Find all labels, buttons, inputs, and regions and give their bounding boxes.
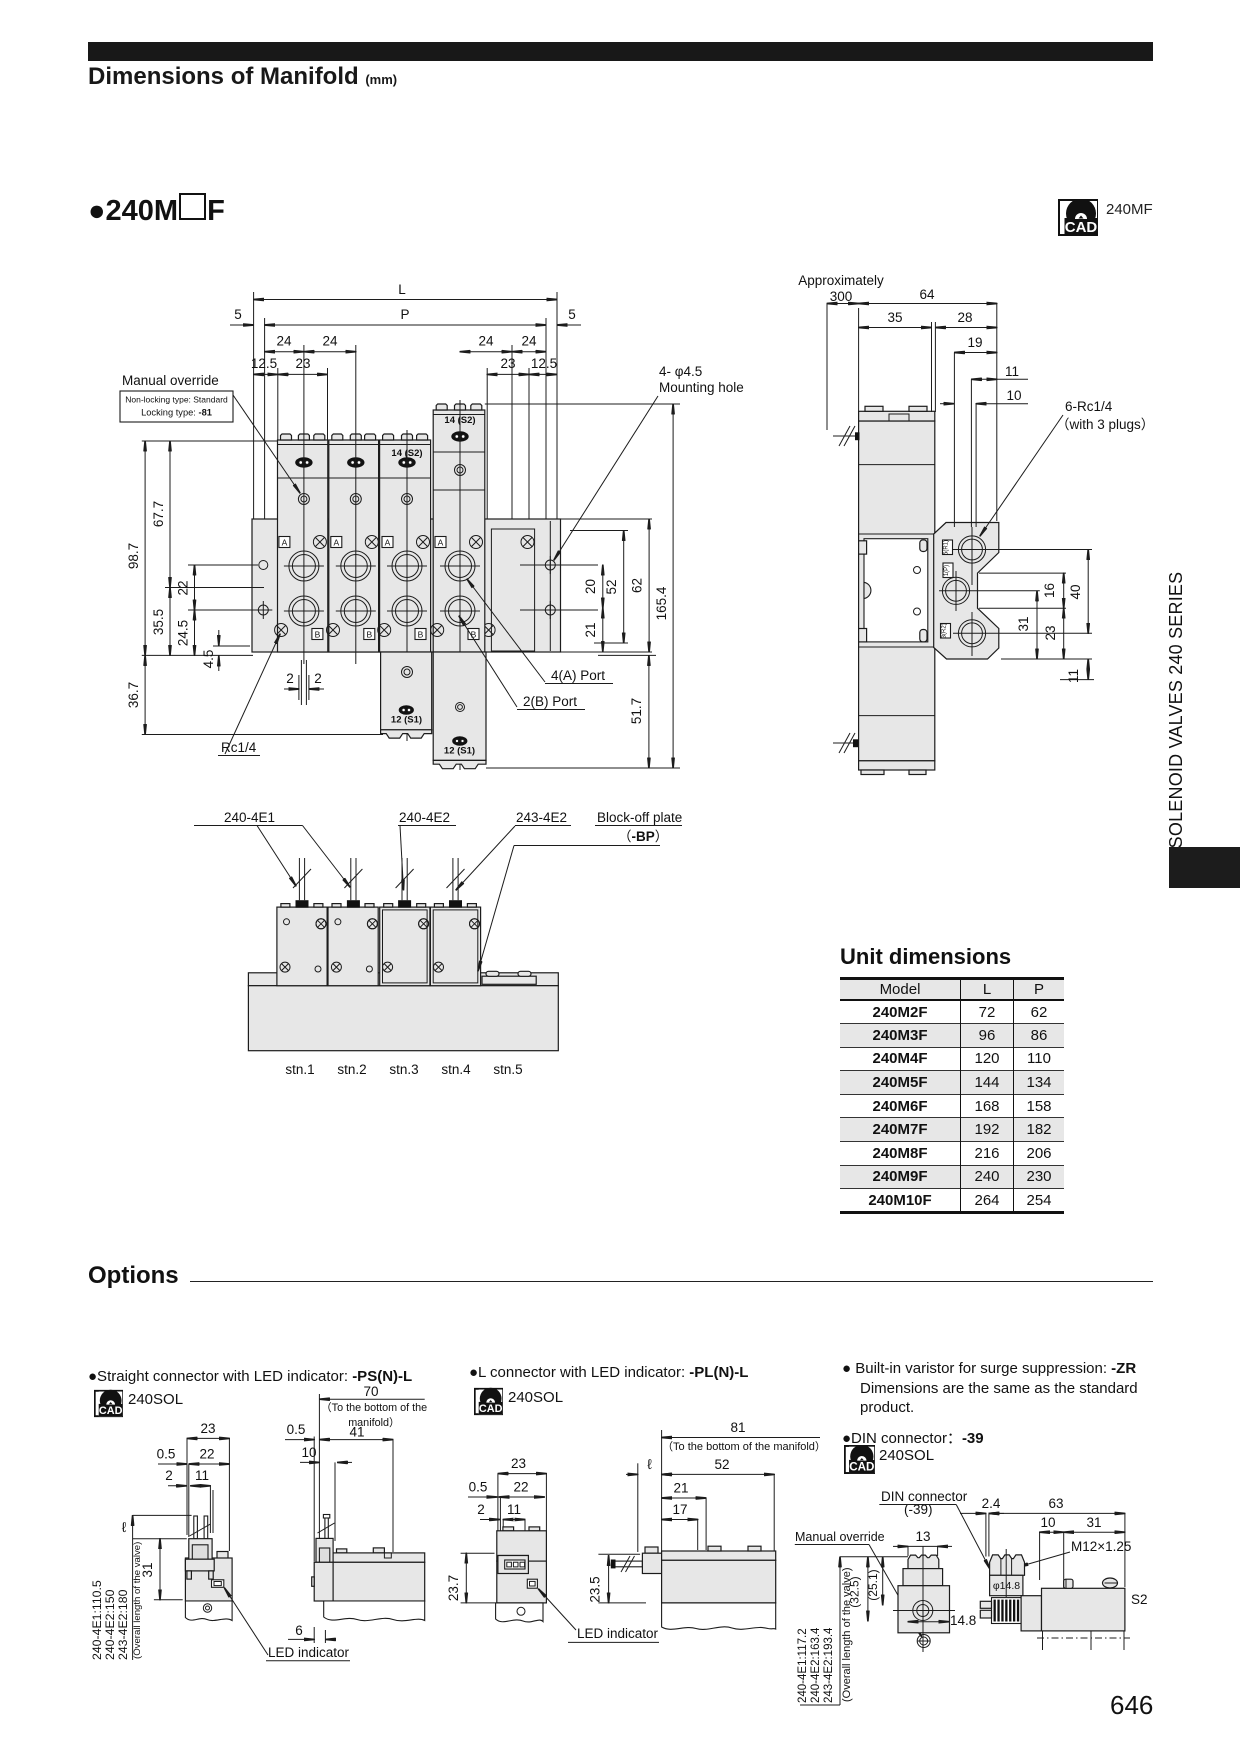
svg-text:63: 63 [1048, 1496, 1063, 1511]
svg-text:11: 11 [195, 1468, 209, 1483]
svg-text:14.8: 14.8 [950, 1613, 976, 1628]
svg-text:300: 300 [830, 289, 853, 304]
svg-text:240-4E2:163.4: 240-4E2:163.4 [810, 1627, 822, 1703]
svg-text:stn.2: stn.2 [337, 1062, 366, 1077]
svg-text:17: 17 [672, 1502, 687, 1517]
svg-text:stn.3: stn.3 [389, 1062, 418, 1077]
svg-text:13: 13 [915, 1529, 930, 1544]
svg-text:23: 23 [500, 356, 515, 371]
svg-text:ℓ: ℓ [122, 1519, 127, 1535]
svg-text:（with 3 plugs）: （with 3 plugs） [1056, 417, 1154, 432]
svg-text:31: 31 [1086, 1515, 1101, 1530]
svg-text:（To the bottom of the: （To the bottom of the [321, 1401, 427, 1414]
svg-text:stn.5: stn.5 [493, 1062, 522, 1077]
svg-text:A: A [385, 538, 391, 548]
svg-text:3(R2): 3(R2) [942, 623, 948, 638]
svg-text:70: 70 [363, 1384, 378, 1399]
svg-text:B: B [315, 630, 321, 640]
svg-text:A: A [438, 538, 444, 548]
svg-text:5(R1): 5(R1) [944, 540, 950, 555]
svg-text:LED indicator: LED indicator [268, 1645, 350, 1660]
svg-text:21: 21 [673, 1481, 688, 1496]
svg-text:67.7: 67.7 [151, 501, 166, 527]
svg-text:23.7: 23.7 [446, 1575, 461, 1601]
svg-text:Block-off plate: Block-off plate [597, 810, 682, 825]
svg-text:23: 23 [511, 1456, 526, 1471]
svg-text:23.5: 23.5 [588, 1576, 603, 1602]
svg-text:stn.4: stn.4 [441, 1062, 471, 1077]
svg-text:20: 20 [583, 579, 598, 594]
svg-text:LED indicator: LED indicator [577, 1626, 659, 1641]
svg-text:4- φ4.5: 4- φ4.5 [659, 364, 702, 379]
svg-text:Mounting hole: Mounting hole [659, 380, 744, 395]
svg-text:62: 62 [630, 578, 645, 593]
svg-text:P: P [400, 307, 409, 322]
svg-text:51.7: 51.7 [629, 698, 644, 724]
svg-text:6: 6 [295, 1623, 303, 1638]
svg-text:A: A [333, 538, 339, 548]
svg-text:(Overall length of the valve): (Overall length of the valve) [841, 1567, 853, 1702]
svg-text:L: L [398, 282, 406, 297]
svg-text:31: 31 [140, 1562, 155, 1577]
svg-text:23: 23 [295, 356, 310, 371]
svg-text:31: 31 [1016, 616, 1031, 631]
svg-text:4.5: 4.5 [201, 650, 216, 669]
svg-text:12 (S1): 12 (S1) [444, 746, 475, 757]
svg-text:24: 24 [478, 334, 494, 349]
svg-text:Locking type: -81: Locking type: -81 [141, 408, 212, 418]
svg-text:41: 41 [349, 1425, 364, 1440]
svg-text:22: 22 [513, 1480, 528, 1495]
svg-text:240-4E2:150: 240-4E2:150 [103, 1589, 117, 1660]
svg-text:Manual override: Manual override [122, 373, 219, 388]
svg-text:Non-locking type: Standard: Non-locking type: Standard [125, 395, 228, 405]
svg-text:24.5: 24.5 [176, 620, 191, 646]
svg-text:22: 22 [199, 1447, 214, 1462]
svg-text:stn.1: stn.1 [285, 1062, 314, 1077]
svg-text:(25.1): (25.1) [866, 1569, 880, 1600]
svg-text:M12×1.25: M12×1.25 [1071, 1539, 1131, 1554]
svg-text:52: 52 [604, 579, 619, 594]
svg-text:0.5: 0.5 [287, 1422, 306, 1437]
svg-text:23: 23 [1043, 625, 1058, 640]
svg-text:ℓ: ℓ [647, 1456, 652, 1472]
svg-text:243-4E2:180: 243-4E2:180 [116, 1589, 130, 1660]
svg-text:2(B) Port: 2(B) Port [523, 694, 577, 709]
svg-text:98.7: 98.7 [126, 543, 141, 569]
svg-text:24: 24 [276, 334, 292, 349]
svg-text:6-Rc1/4: 6-Rc1/4 [1065, 399, 1113, 414]
svg-text:（-BP）: （-BP） [618, 829, 668, 844]
svg-text:2: 2 [477, 1502, 485, 1517]
svg-text:Approximately: Approximately [798, 273, 884, 288]
svg-text:243-4E2:193.4: 243-4E2:193.4 [823, 1627, 835, 1703]
svg-text:S2: S2 [1131, 1592, 1148, 1607]
svg-text:52: 52 [714, 1457, 729, 1472]
svg-text:240-4E1:110.5: 240-4E1:110.5 [90, 1580, 104, 1660]
svg-text:B: B [366, 630, 372, 640]
svg-text:1(P): 1(P) [944, 565, 950, 576]
svg-text:35: 35 [887, 310, 902, 325]
svg-text:21: 21 [583, 622, 598, 637]
svg-text:64: 64 [919, 287, 935, 302]
svg-text:11: 11 [1066, 669, 1081, 683]
svg-text:2: 2 [165, 1468, 173, 1483]
svg-text:10: 10 [1040, 1515, 1055, 1530]
svg-text:12 (S1): 12 (S1) [391, 715, 422, 726]
svg-text:36.7: 36.7 [126, 682, 141, 708]
svg-text:B: B [418, 630, 424, 640]
svg-text:10: 10 [1006, 388, 1021, 403]
svg-text:2: 2 [286, 671, 294, 686]
svg-text:10: 10 [301, 1445, 316, 1460]
svg-text:11: 11 [507, 1502, 521, 1517]
svg-text:165.4: 165.4 [654, 586, 669, 620]
svg-text:81: 81 [730, 1420, 745, 1435]
svg-text:5: 5 [568, 307, 576, 322]
svg-text:2: 2 [314, 671, 322, 686]
svg-text:（To the bottom of the manifold: （To the bottom of the manifold） [662, 1440, 826, 1453]
svg-text:B: B [471, 630, 477, 640]
svg-text:240-4E1: 240-4E1 [224, 810, 275, 825]
svg-text:11: 11 [1005, 364, 1019, 379]
svg-text:19: 19 [967, 335, 982, 350]
svg-text:12.5: 12.5 [531, 356, 557, 371]
svg-text:22: 22 [176, 580, 191, 595]
svg-text:12.5: 12.5 [251, 356, 277, 371]
svg-text:2.4: 2.4 [982, 1496, 1001, 1511]
svg-text:0.5: 0.5 [157, 1447, 176, 1462]
svg-text:5: 5 [234, 307, 242, 322]
svg-text:Manual override: Manual override [795, 1530, 885, 1544]
svg-text:24: 24 [521, 334, 537, 349]
svg-text:0.5: 0.5 [469, 1480, 488, 1495]
svg-text:243-4E2: 243-4E2 [516, 810, 567, 825]
svg-text:A: A [282, 538, 288, 548]
svg-text:240-4E1:117.2: 240-4E1:117.2 [797, 1628, 809, 1703]
svg-text:(Overall length of the valve): (Overall length of the valve) [132, 1542, 143, 1659]
svg-text:240-4E2: 240-4E2 [399, 810, 450, 825]
svg-text:16: 16 [1042, 583, 1057, 598]
svg-text:4(A) Port: 4(A) Port [551, 668, 605, 683]
svg-text:24: 24 [322, 334, 338, 349]
svg-text:Rc1/4: Rc1/4 [221, 740, 257, 755]
svg-text:35.5: 35.5 [151, 609, 166, 635]
svg-text:40: 40 [1068, 584, 1083, 599]
svg-text:23: 23 [200, 1421, 215, 1436]
svg-text:28: 28 [957, 310, 972, 325]
